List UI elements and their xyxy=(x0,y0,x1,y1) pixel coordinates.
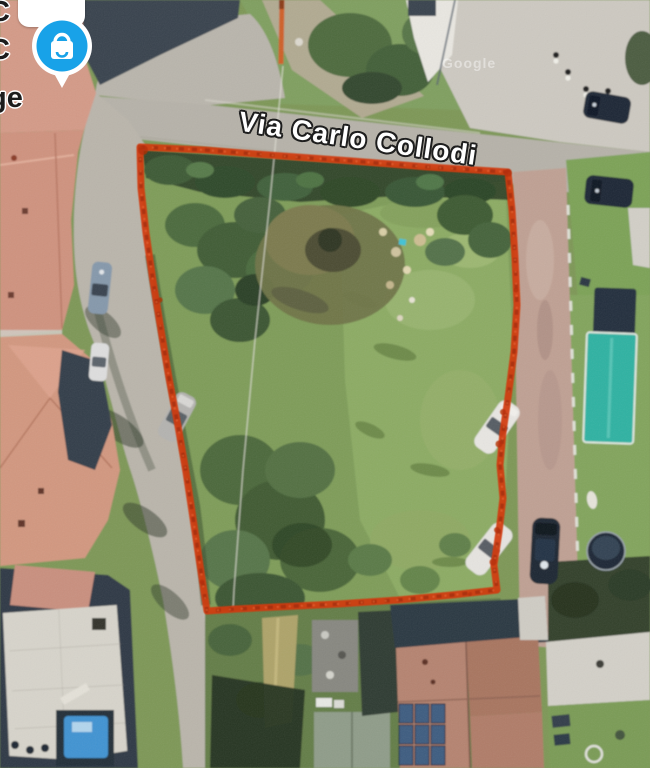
map-view[interactable]: Via Carlo Collodi Google C C ge xyxy=(0,0,650,768)
shopping-bag-pin-marker[interactable] xyxy=(24,14,100,110)
photo-grain xyxy=(0,0,650,768)
satellite-imagery xyxy=(0,0,650,768)
